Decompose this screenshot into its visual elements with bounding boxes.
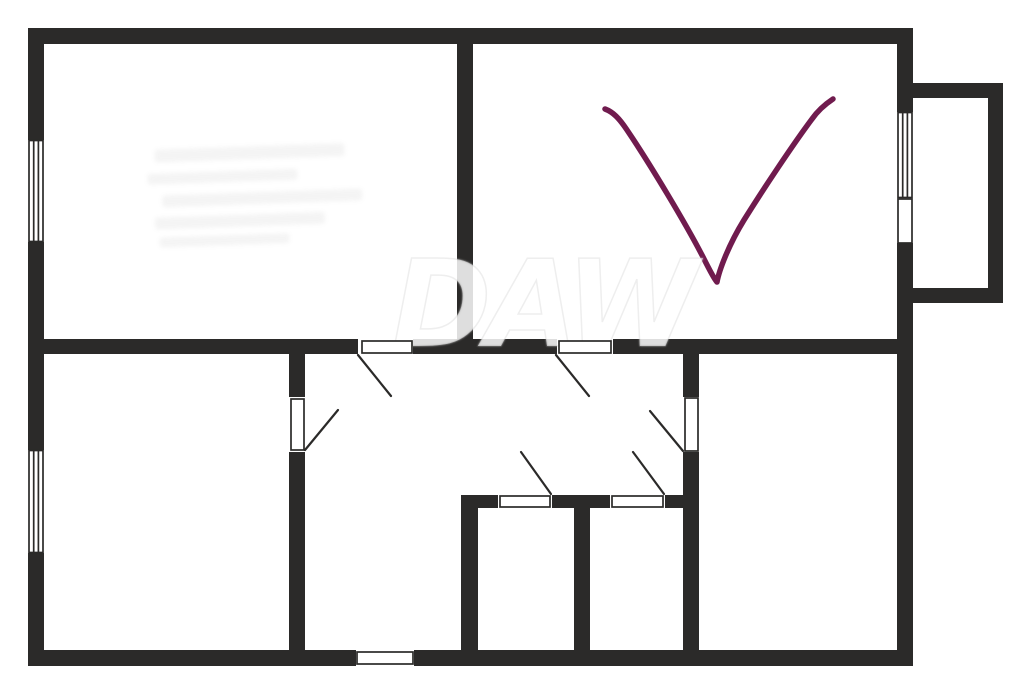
smudge-line — [154, 143, 344, 163]
outer-wall-bottom — [28, 650, 913, 666]
window-topleft-room — [29, 141, 43, 242]
opening-hall-to-room-topright — [557, 339, 613, 354]
balcony-wall-right — [988, 83, 1003, 303]
window-bottomleft-room — [29, 451, 43, 553]
door-leaf-bath-left — [500, 496, 550, 507]
door-leaf-bottomleft-room — [291, 399, 304, 450]
door-leaf-bottomright-room — [685, 398, 698, 451]
wall-bath-left — [461, 495, 478, 650]
wall-bath-divider — [574, 508, 590, 650]
door-leaf-entrance — [357, 652, 413, 664]
floor-plan: DAW — [0, 0, 1024, 699]
door-leaf-bath-right — [612, 496, 663, 507]
wall-top-rooms-divider — [457, 44, 473, 339]
smudge-line — [162, 188, 362, 207]
wall-mid-horizontal — [44, 339, 897, 354]
outer-wall-top — [28, 28, 913, 44]
smudge-line — [159, 233, 289, 248]
smudge-line — [155, 212, 325, 230]
faint-text-smudge — [146, 132, 372, 254]
floor-plan-drawing — [0, 0, 1024, 699]
opening-hall-to-room-topleft — [358, 339, 413, 354]
smudge-line — [147, 169, 297, 185]
window-balcony — [898, 113, 912, 244]
outer-wall-left — [28, 28, 44, 666]
balcony-door-panel — [898, 199, 912, 243]
balcony-wall-bottom — [913, 288, 1003, 303]
